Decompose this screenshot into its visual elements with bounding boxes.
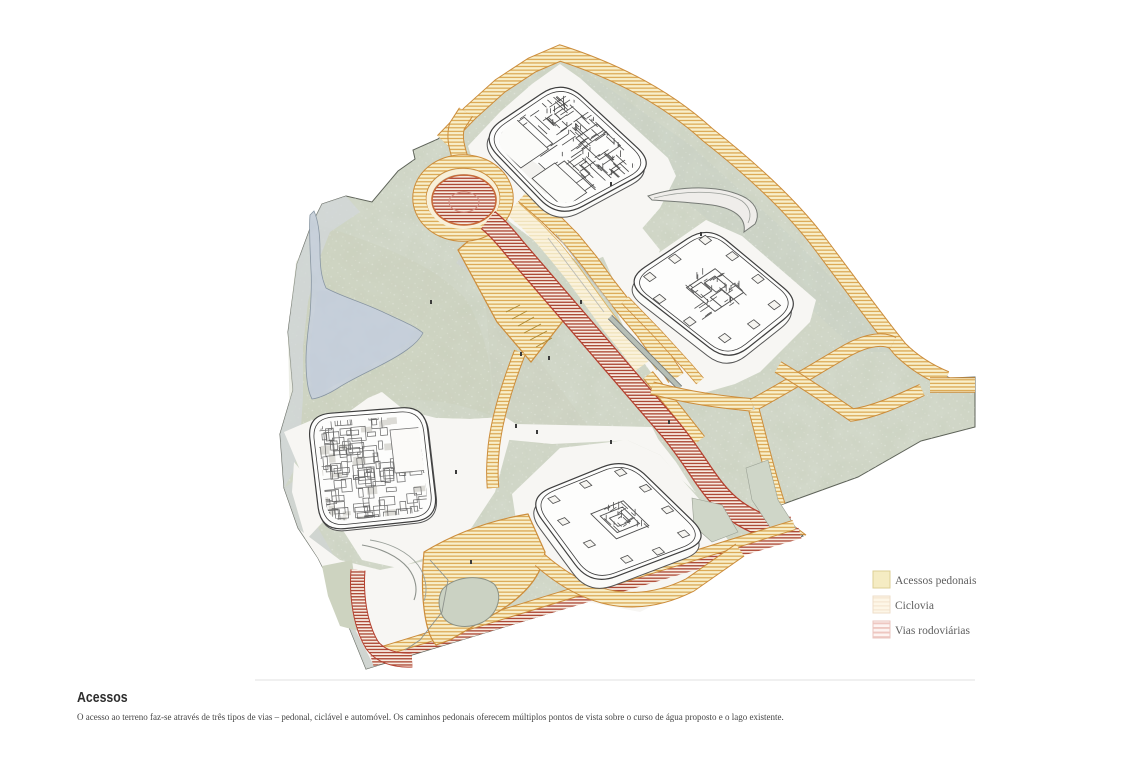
svg-text:Ciclovia: Ciclovia	[895, 600, 934, 612]
svg-text:Vias rodoviárias: Vias rodoviárias	[895, 625, 971, 637]
svg-text:Acessos pedonais: Acessos pedonais	[895, 575, 977, 587]
